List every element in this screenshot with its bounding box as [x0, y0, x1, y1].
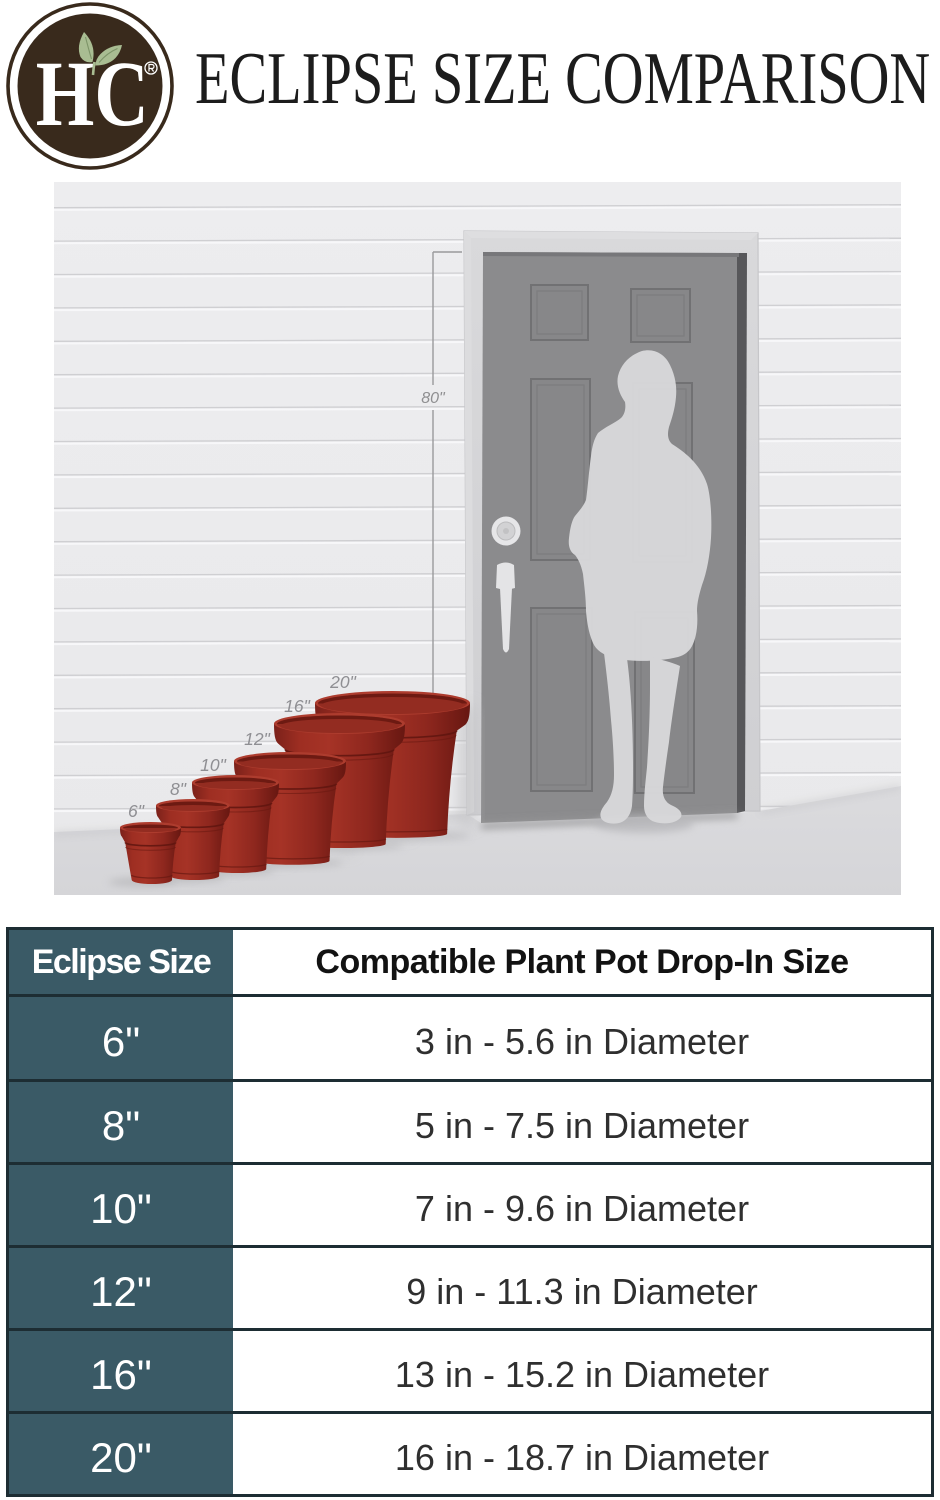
svg-text:6": 6" [128, 801, 145, 821]
svg-text:80": 80" [421, 390, 446, 407]
svg-text:10": 10" [200, 755, 226, 775]
svg-text:12": 12" [244, 729, 270, 749]
svg-text:8": 8" [170, 779, 187, 799]
svg-text:16": 16" [284, 696, 310, 716]
svg-text:20": 20" [329, 672, 356, 692]
